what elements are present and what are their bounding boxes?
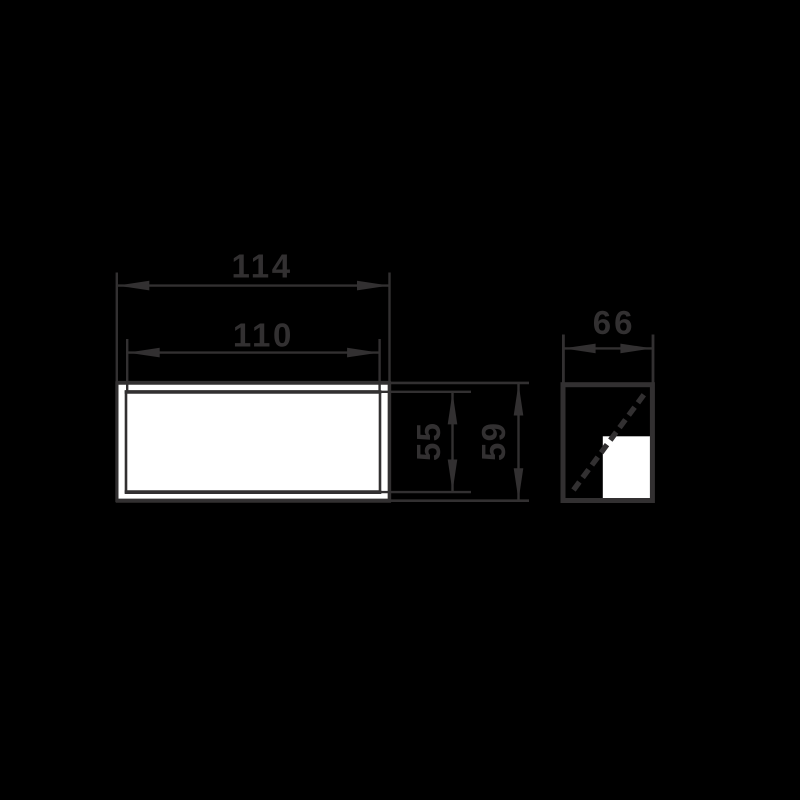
svg-text:59: 59 (475, 423, 512, 461)
svg-text:55: 55 (410, 423, 447, 461)
svg-text:114: 114 (232, 248, 291, 285)
svg-text:110: 110 (233, 317, 291, 354)
